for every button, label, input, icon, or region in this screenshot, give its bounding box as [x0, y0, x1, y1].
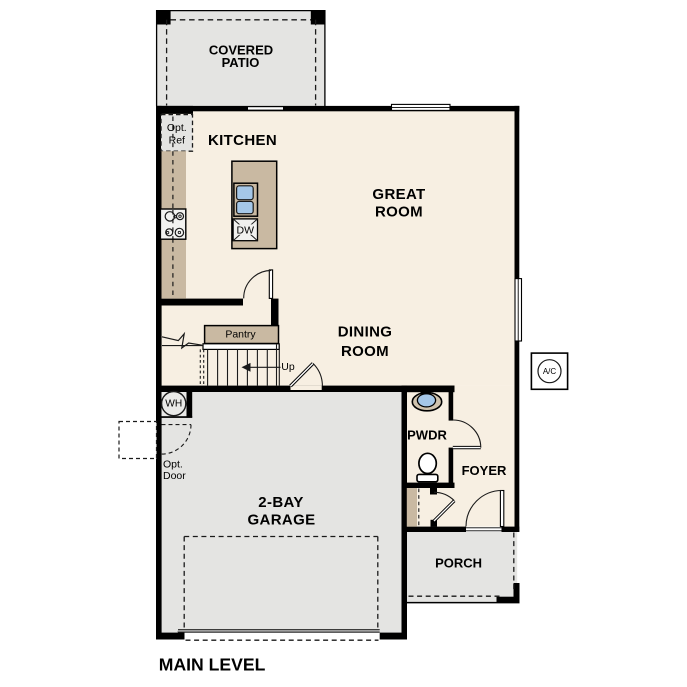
svg-text:WH: WH [165, 399, 182, 410]
svg-text:FOYER: FOYER [462, 463, 507, 478]
svg-text:Door: Door [163, 470, 186, 482]
svg-text:MAIN LEVEL: MAIN LEVEL [159, 655, 266, 675]
svg-text:Up: Up [281, 361, 295, 373]
svg-text:Opt.: Opt. [163, 459, 183, 471]
svg-text:ROOM: ROOM [341, 343, 389, 360]
svg-text:ROOM: ROOM [375, 204, 423, 221]
svg-text:DW: DW [237, 224, 255, 236]
svg-text:A/C: A/C [543, 367, 557, 376]
svg-text:2-BAY: 2-BAY [258, 494, 303, 511]
svg-text:PORCH: PORCH [435, 556, 482, 571]
svg-text:Opt.: Opt. [167, 122, 187, 134]
svg-text:Ref: Ref [169, 135, 185, 147]
svg-text:GREAT: GREAT [372, 186, 425, 203]
svg-text:PWDR: PWDR [407, 427, 447, 442]
svg-text:KITCHEN: KITCHEN [208, 132, 277, 149]
svg-text:PATIO: PATIO [222, 55, 260, 70]
svg-text:GARAGE: GARAGE [248, 512, 316, 529]
svg-text:DINING: DINING [338, 323, 393, 340]
svg-text:Pantry: Pantry [225, 328, 256, 340]
